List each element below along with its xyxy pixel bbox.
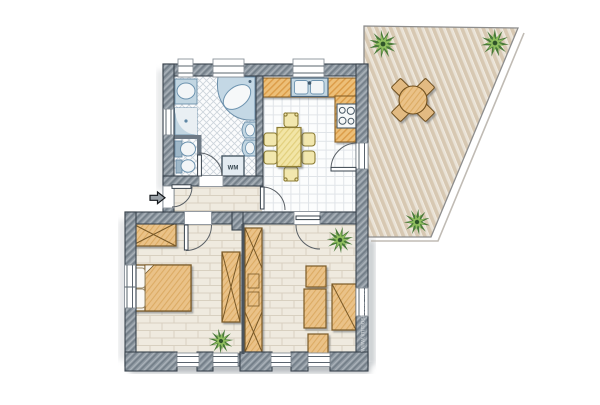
svg-text:www.immoscout24.de: www.immoscout24.de: [360, 288, 367, 353]
svg-text:WM: WM: [228, 166, 239, 172]
